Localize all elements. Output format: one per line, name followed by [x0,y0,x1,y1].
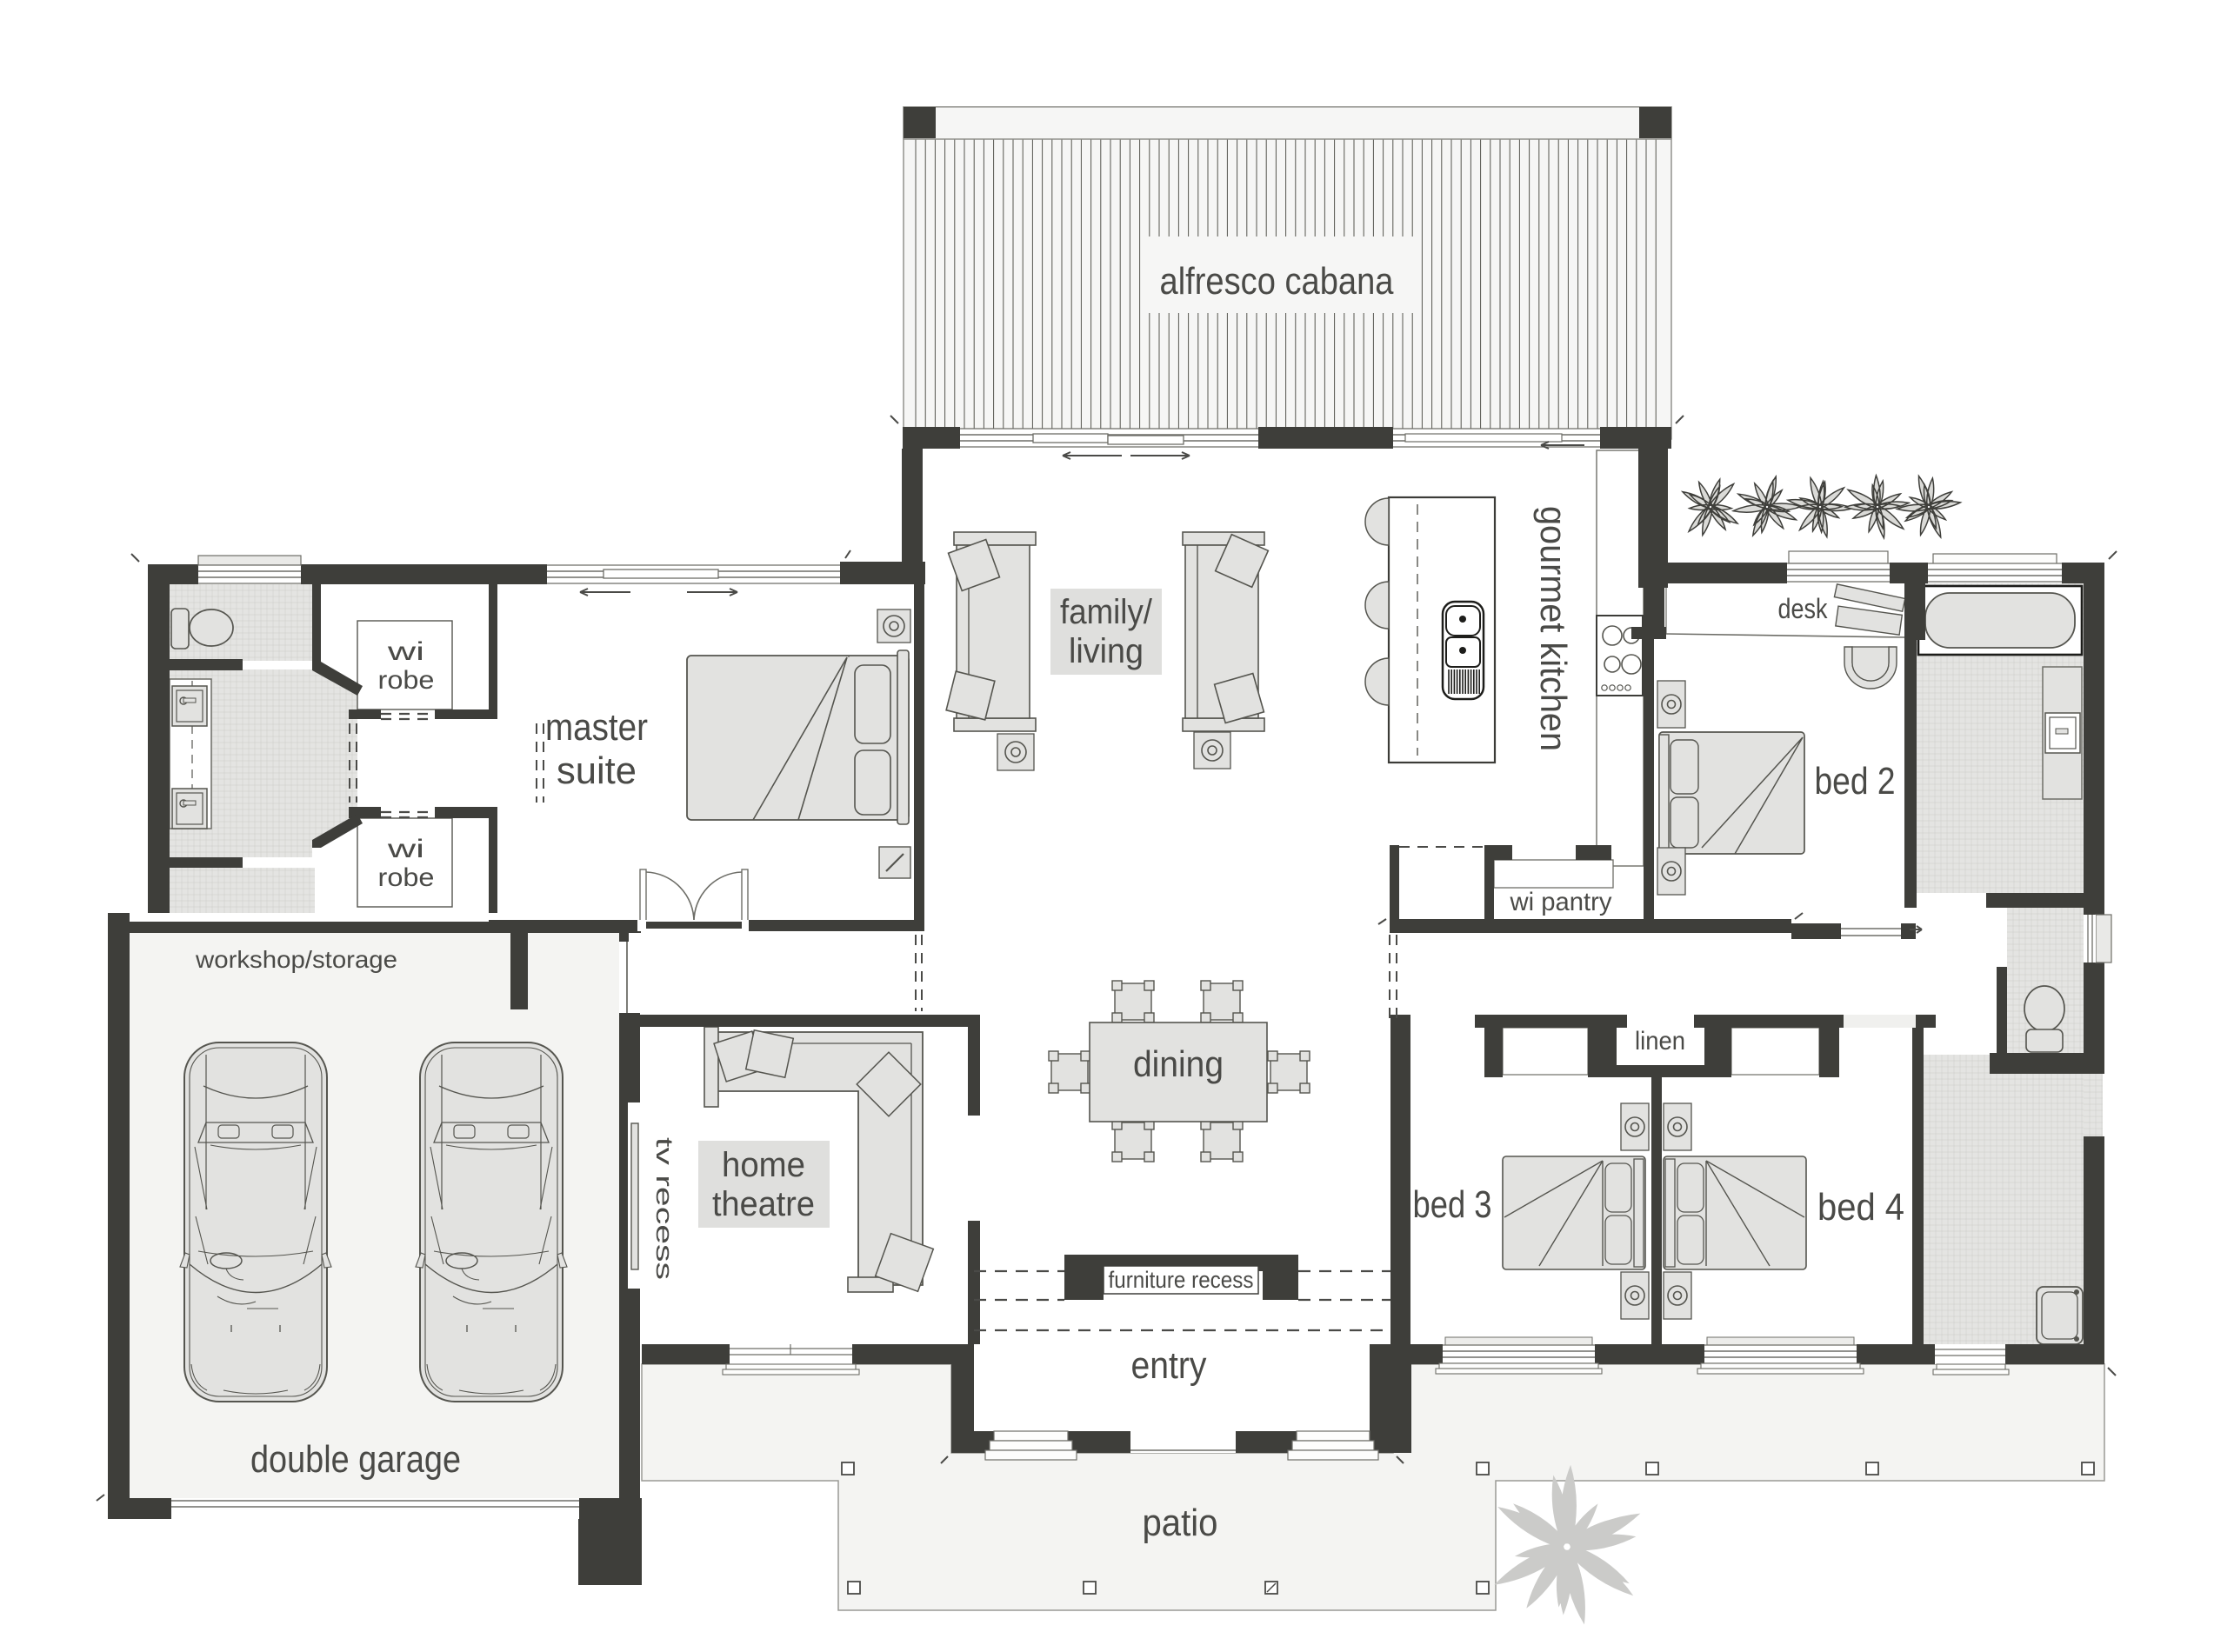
svg-text:workshop/storage: workshop/storage [195,946,397,973]
svg-text:wi: wi [387,637,424,666]
svg-text:gourmet kitchen: gourmet kitchen [1533,506,1574,751]
svg-text:tv recess: tv recess [651,1137,677,1280]
svg-text:bed 2: bed 2 [1815,760,1896,803]
svg-text:entry: entry [1131,1344,1207,1387]
svg-text:furniture recess: furniture recess [1109,1267,1254,1293]
svg-text:wi pantry: wi pantry [1510,888,1612,916]
svg-text:linen: linen [1635,1027,1685,1056]
svg-text:double garage: double garage [250,1438,461,1481]
svg-text:master: master [545,706,648,749]
svg-text:bed 3: bed 3 [1413,1183,1492,1226]
svg-text:desk: desk [1778,593,1829,624]
svg-text:patio: patio [1143,1502,1218,1544]
svg-text:home: home [722,1146,805,1184]
svg-text:alfresco cabana: alfresco cabana [1160,260,1394,303]
svg-text:living: living [1069,632,1144,670]
svg-text:dining: dining [1133,1043,1224,1084]
svg-text:family/: family/ [1060,593,1153,631]
svg-text:suite: suite [557,749,637,792]
svg-text:robe: robe [378,666,435,695]
svg-text:wi: wi [387,835,424,863]
svg-text:theatre: theatre [712,1185,815,1223]
svg-text:robe: robe [378,863,435,892]
svg-text:bed 4: bed 4 [1817,1186,1904,1229]
